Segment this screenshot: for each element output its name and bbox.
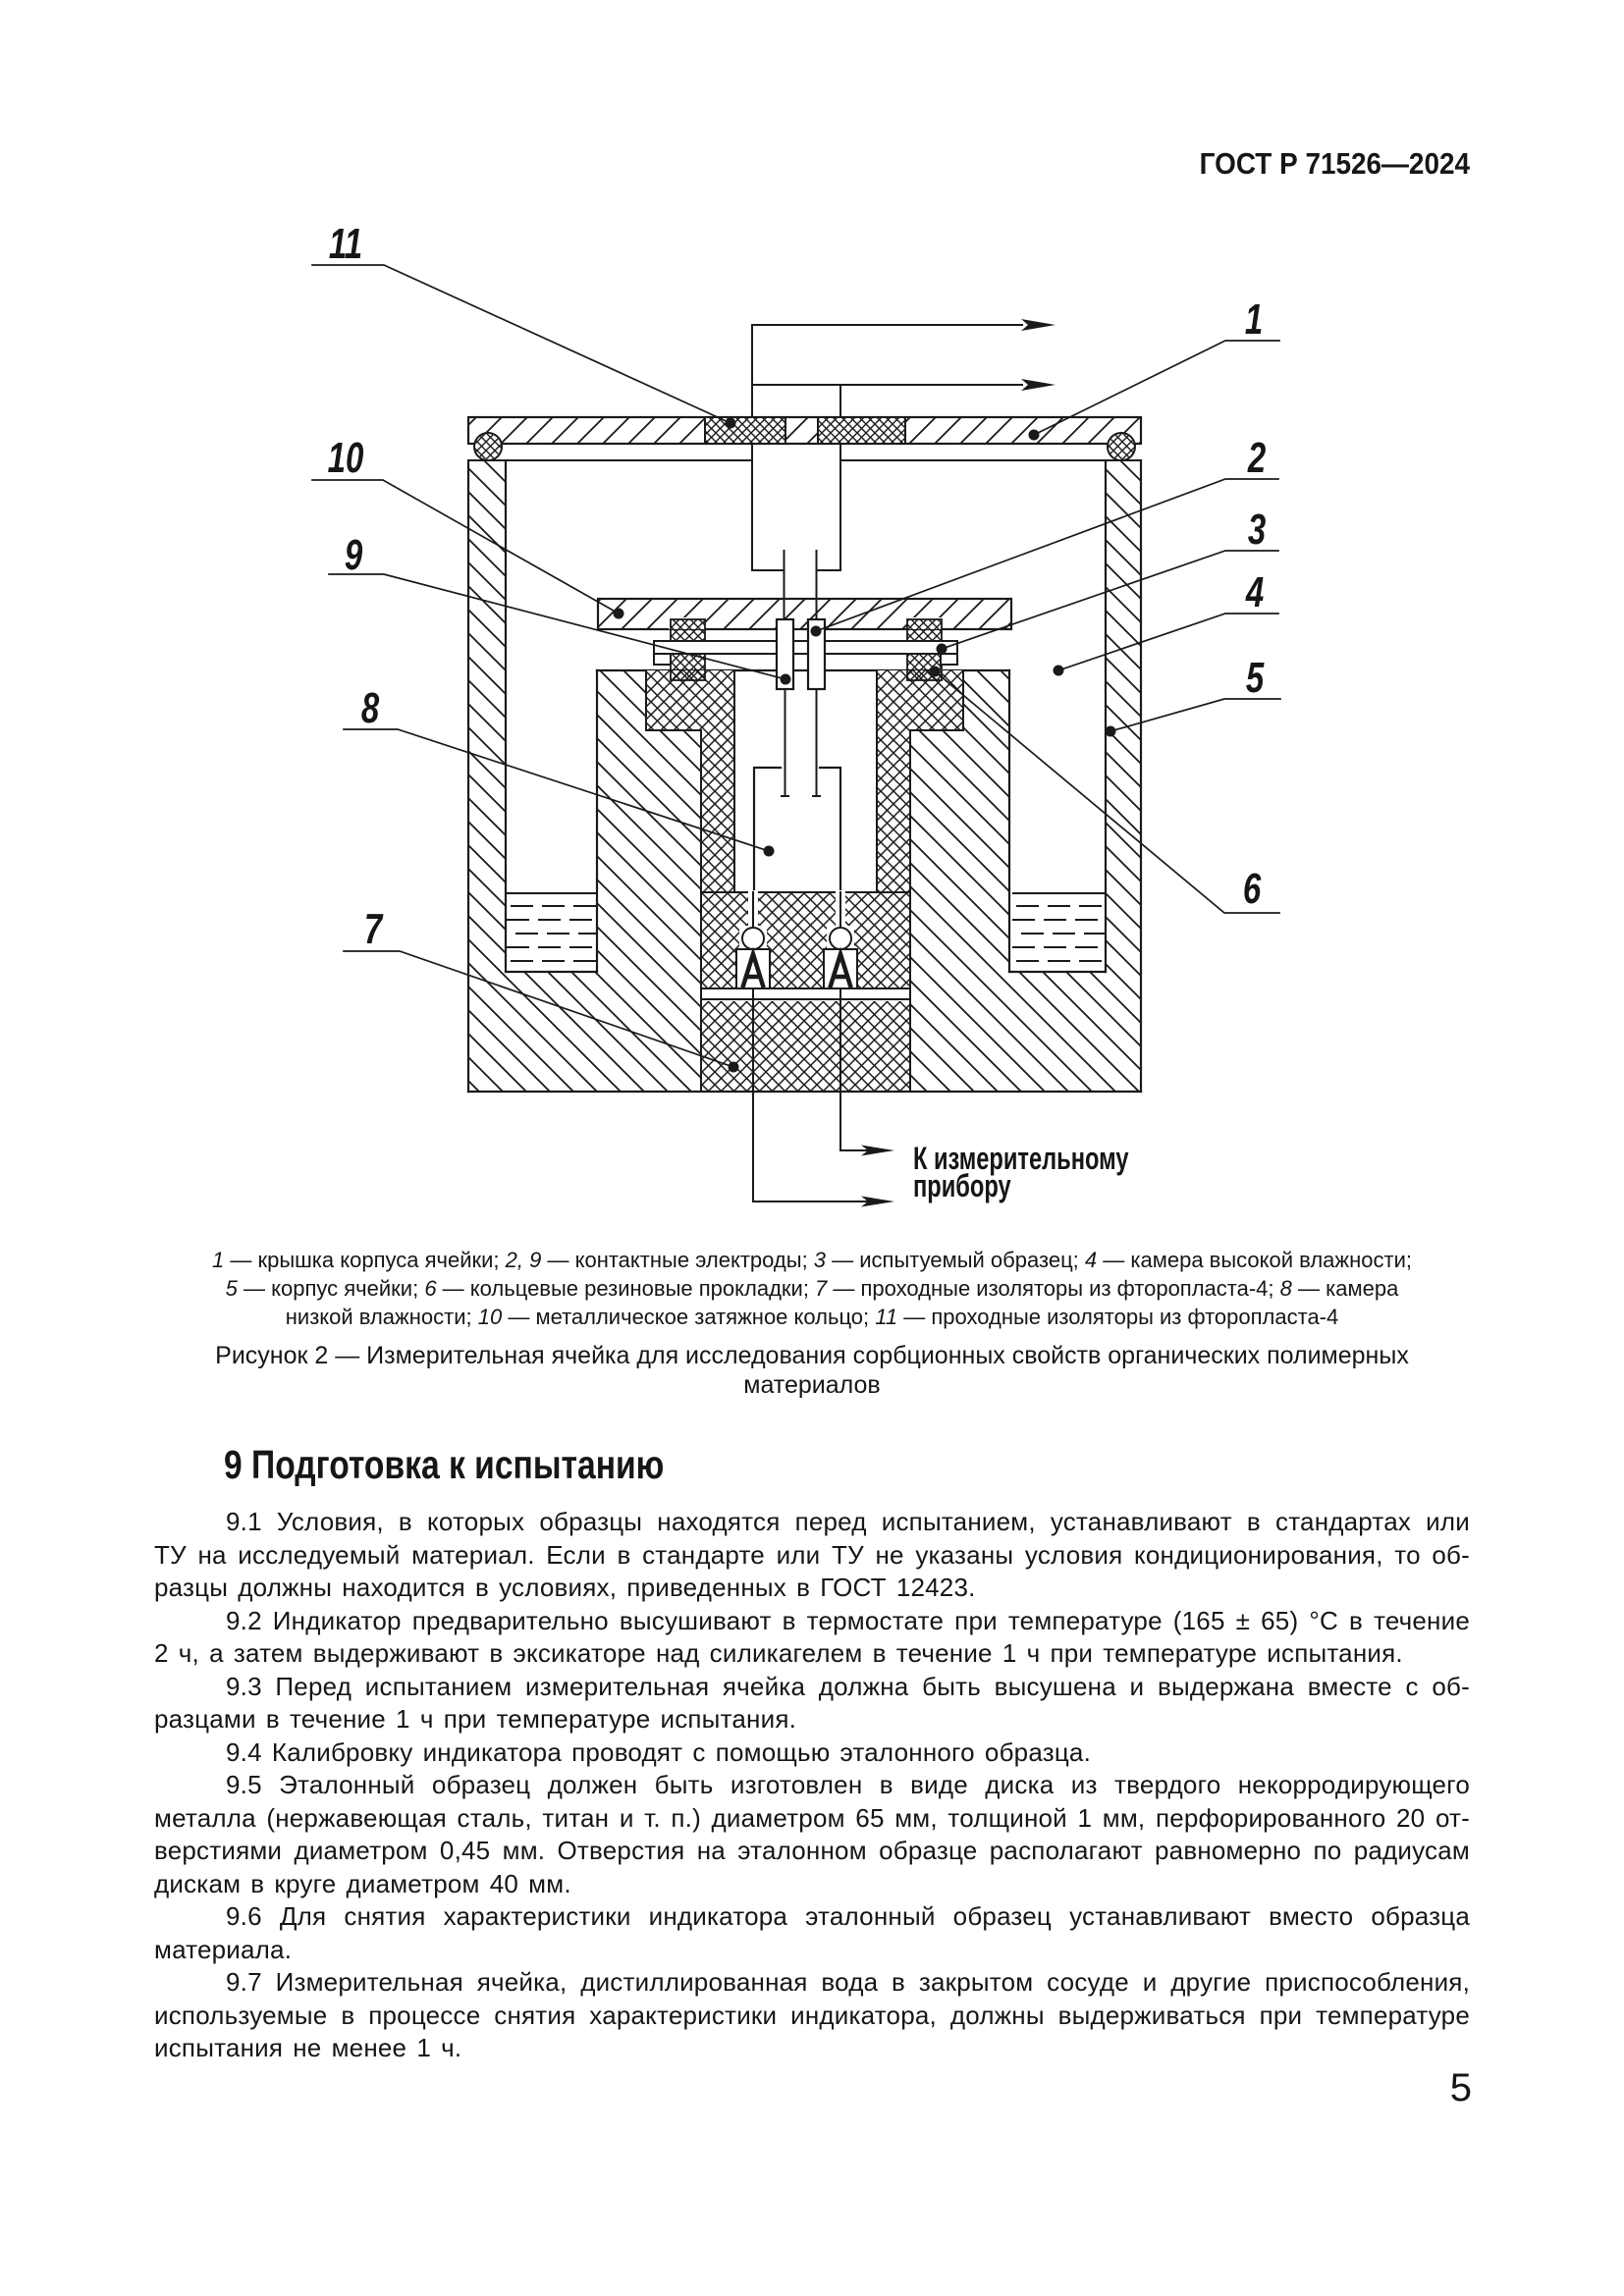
svg-text:6: 6 [1243, 866, 1262, 914]
svg-text:5: 5 [1246, 655, 1266, 703]
svg-text:2: 2 [1247, 435, 1267, 483]
svg-text:прибору: прибору [913, 1169, 1011, 1203]
svg-text:3: 3 [1248, 507, 1267, 555]
svg-text:1: 1 [1245, 296, 1263, 345]
svg-text:10: 10 [328, 435, 364, 483]
svg-text:4: 4 [1245, 569, 1264, 617]
svg-text:9: 9 [345, 532, 363, 580]
svg-text:11: 11 [329, 221, 362, 269]
svg-text:8: 8 [361, 685, 380, 733]
svg-text:7: 7 [364, 906, 384, 954]
